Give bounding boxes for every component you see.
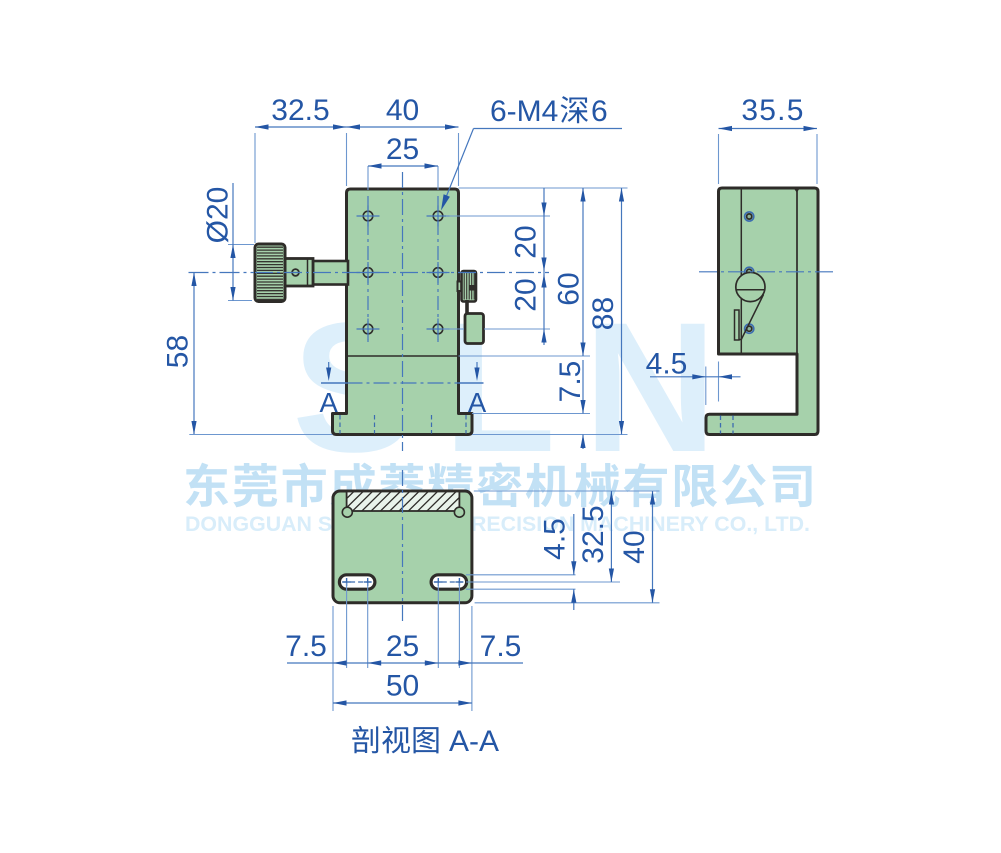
svg-text:58: 58 bbox=[162, 335, 195, 368]
svg-text:40: 40 bbox=[618, 530, 651, 563]
svg-text:60: 60 bbox=[553, 272, 586, 305]
svg-text:20: 20 bbox=[510, 278, 543, 311]
svg-text:7.5: 7.5 bbox=[554, 361, 587, 403]
svg-text:A-A: A-A bbox=[449, 725, 499, 758]
svg-text:32.5: 32.5 bbox=[577, 505, 610, 563]
svg-text:7.5: 7.5 bbox=[285, 630, 327, 663]
svg-text:32.5: 32.5 bbox=[271, 94, 329, 127]
svg-text:35.5: 35.5 bbox=[741, 94, 804, 127]
svg-text:50: 50 bbox=[386, 670, 419, 703]
svg-text:20: 20 bbox=[510, 225, 543, 258]
svg-text:7.5: 7.5 bbox=[480, 630, 522, 663]
svg-text:25: 25 bbox=[386, 133, 419, 166]
svg-text:6-M4: 6-M4 bbox=[490, 95, 558, 128]
svg-text:88: 88 bbox=[587, 297, 620, 330]
svg-text:A: A bbox=[468, 387, 487, 418]
svg-text:DONGGUAN SHENG LING PRECISION: DONGGUAN SHENG LING PRECISION MACHINERY … bbox=[185, 513, 810, 536]
svg-text:40: 40 bbox=[386, 94, 419, 127]
svg-text:Ø20: Ø20 bbox=[202, 187, 235, 244]
svg-text:A: A bbox=[320, 387, 339, 418]
svg-text:25: 25 bbox=[386, 630, 419, 663]
svg-text:6: 6 bbox=[591, 95, 608, 128]
svg-text:4.5: 4.5 bbox=[539, 518, 572, 560]
svg-text:4.5: 4.5 bbox=[646, 348, 688, 381]
